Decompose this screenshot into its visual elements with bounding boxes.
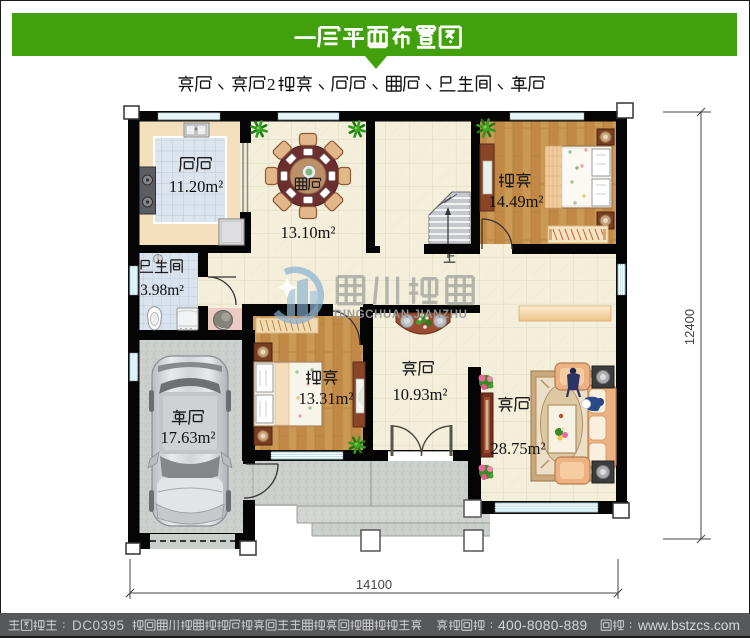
svg-text:DINGCHUAN JIANZHU: DINGCHUAN JIANZHU bbox=[334, 309, 468, 321]
svg-text:13.31m²: 13.31m² bbox=[299, 389, 354, 408]
svg-text:12400: 12400 bbox=[682, 309, 697, 345]
svg-text:13.10m²: 13.10m² bbox=[281, 223, 336, 242]
svg-text:11.20m²: 11.20m² bbox=[169, 177, 223, 196]
svg-text:10.93m²: 10.93m² bbox=[393, 385, 448, 404]
svg-text:DC0395: DC0395 bbox=[72, 618, 125, 633]
svg-text:2: 2 bbox=[267, 75, 276, 94]
svg-text:14100: 14100 bbox=[356, 577, 392, 592]
svg-text:14.49m²: 14.49m² bbox=[489, 192, 544, 211]
svg-text:www.bstzcs.com: www.bstzcs.com bbox=[637, 618, 740, 633]
svg-text:400-8080-889: 400-8080-889 bbox=[498, 618, 588, 633]
svg-text:3.98m²: 3.98m² bbox=[140, 282, 184, 299]
svg-text:28.75m²: 28.75m² bbox=[491, 439, 546, 458]
svg-text:17.63m²: 17.63m² bbox=[161, 428, 216, 447]
